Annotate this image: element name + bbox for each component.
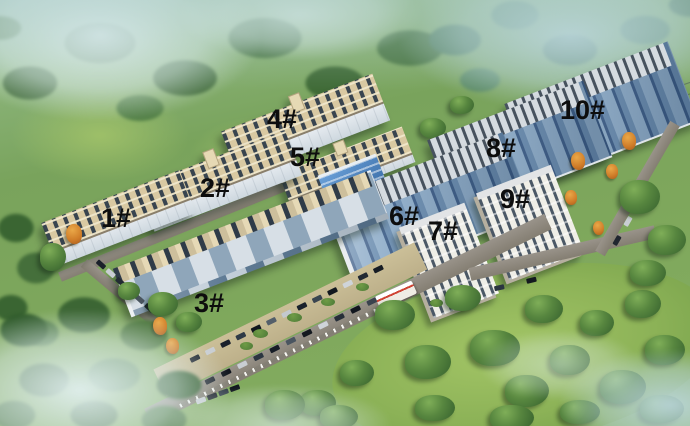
building-label-6: 6# bbox=[389, 203, 419, 230]
hedge-bush bbox=[321, 298, 335, 306]
building-label-5: 5# bbox=[290, 144, 320, 171]
autumn-tree bbox=[622, 132, 636, 150]
autumn-tree bbox=[66, 224, 82, 244]
building-label-1: 1# bbox=[101, 205, 131, 232]
building-label-9: 9# bbox=[500, 186, 530, 213]
tree-cluster bbox=[450, 96, 474, 114]
hedge-bush bbox=[253, 329, 268, 338]
industrial-park-rendering: 1# 2# 3# 4# 5# 6# 7# 8# 9# 10# bbox=[0, 0, 690, 426]
building-label-10: 10# bbox=[560, 97, 605, 124]
hedge-bush bbox=[287, 313, 302, 322]
autumn-tree bbox=[593, 221, 604, 235]
tree-cluster bbox=[490, 405, 534, 426]
tree-cluster bbox=[648, 225, 686, 255]
hedge-bush bbox=[240, 342, 253, 350]
building-label-4: 4# bbox=[267, 106, 297, 133]
autumn-tree bbox=[606, 164, 618, 179]
building-label-8: 8# bbox=[486, 135, 516, 162]
fog-patch bbox=[480, 330, 640, 400]
hedge-bush bbox=[430, 299, 443, 307]
building-label-7: 7# bbox=[428, 218, 458, 245]
hedge-bush bbox=[356, 283, 369, 291]
building-label-3: 3# bbox=[194, 290, 224, 317]
fog-patch bbox=[170, 385, 390, 426]
autumn-tree bbox=[571, 152, 585, 170]
building-label-2: 2# bbox=[200, 175, 230, 202]
autumn-tree bbox=[565, 190, 577, 205]
tree-cluster bbox=[620, 180, 660, 214]
